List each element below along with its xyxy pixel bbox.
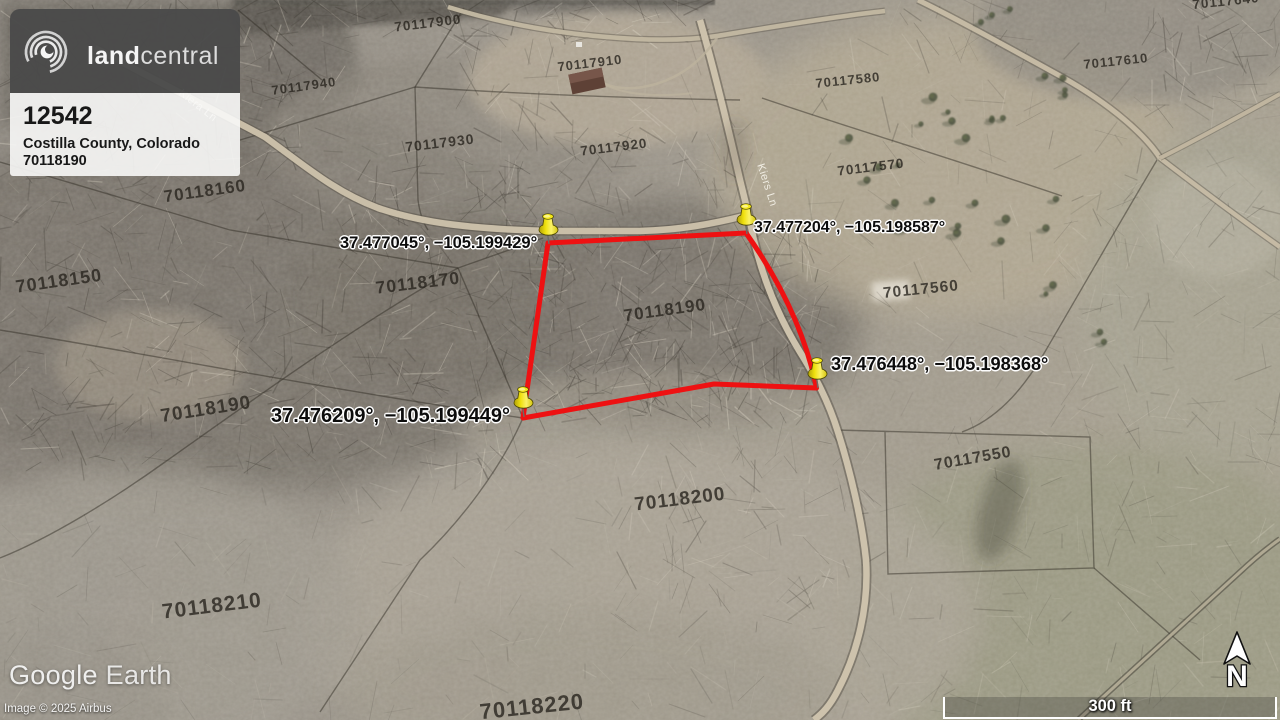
- svg-text:N: N: [1226, 660, 1248, 693]
